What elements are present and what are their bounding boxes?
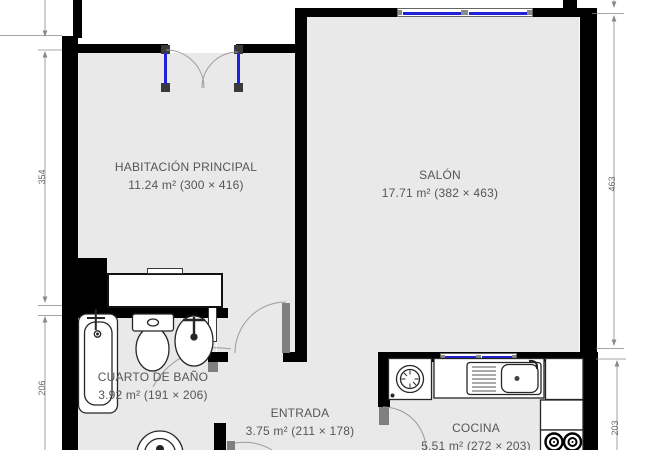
room-area: 17.71 m² (382 × 463): [382, 184, 498, 202]
room-label-bedroom: HABITACIÓN PRINCIPAL 11.24 m² (300 × 416…: [115, 158, 257, 194]
dimension-label-left-lower: 206: [37, 380, 47, 395]
room-area: 5.51 m² (272 × 203): [421, 437, 531, 450]
room-area: 3.92 m² (191 × 206): [98, 386, 208, 404]
washbasin-icon: [137, 431, 183, 450]
room-label-entrance: ENTRADA 3.75 m² (211 × 178): [246, 404, 355, 440]
room-area: 11.24 m² (300 × 416): [115, 176, 257, 194]
room-label-kitchen: COCINA 5.51 m² (272 × 203): [421, 419, 531, 450]
bidet-icon: [175, 316, 213, 366]
room-label-bathroom: CUARTO DE BAÑO 3.92 m² (191 × 206): [98, 368, 208, 404]
floor-plan: HABITACIÓN PRINCIPAL 11.24 m² (300 × 416…: [0, 0, 650, 450]
countertop: [541, 359, 584, 431]
kitchen-sink-icon: [434, 359, 544, 399]
dimension-label-right-upper: 463: [607, 176, 617, 191]
room-label-salon: SALÓN 17.71 m² (382 × 463): [382, 166, 498, 202]
dimension-label-left-upper: 354: [37, 169, 47, 184]
room-name: SALÓN: [382, 166, 498, 184]
washing-machine-icon: [389, 359, 432, 400]
room-name: HABITACIÓN PRINCIPAL: [115, 158, 257, 176]
stove-icon: [541, 430, 584, 450]
toilet-icon: [133, 314, 174, 371]
room-name: COCINA: [421, 419, 531, 437]
room-name: ENTRADA: [246, 404, 355, 422]
room-name: CUARTO DE BAÑO: [98, 368, 208, 386]
room-area: 3.75 m² (211 × 178): [246, 422, 355, 440]
dimension-label-right-lower: 203: [610, 420, 620, 435]
